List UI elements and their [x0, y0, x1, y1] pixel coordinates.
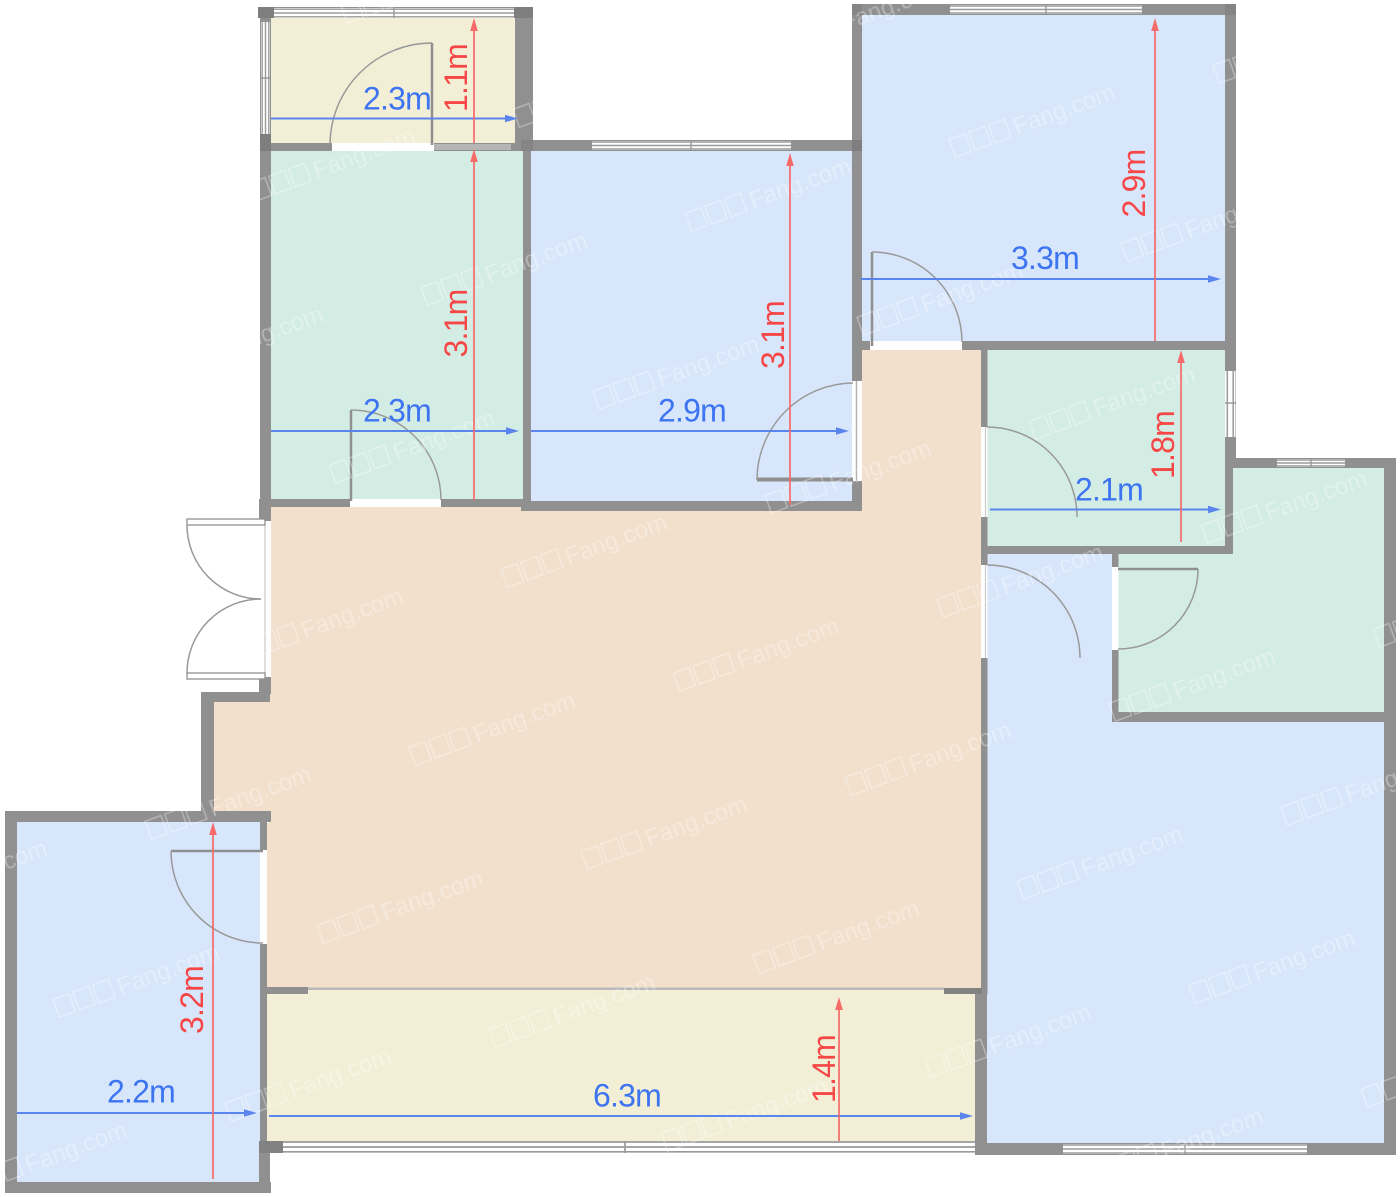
svg-text:3.2m: 3.2m [174, 966, 210, 1034]
svg-text:1.1m: 1.1m [438, 44, 474, 112]
svg-text:2.1m: 2.1m [1075, 471, 1143, 507]
svg-text:3.1m: 3.1m [438, 290, 474, 358]
svg-text:1.4m: 1.4m [806, 1035, 842, 1103]
svg-text:6.3m: 6.3m [593, 1077, 661, 1113]
svg-text:3.3m: 3.3m [1011, 240, 1079, 276]
svg-text:1.8m: 1.8m [1145, 411, 1181, 479]
svg-text:2.3m: 2.3m [363, 393, 431, 429]
svg-text:3.1m: 3.1m [755, 301, 791, 369]
svg-text:2.3m: 2.3m [363, 81, 431, 117]
svg-text:2.2m: 2.2m [107, 1073, 175, 1109]
svg-text:2.9m: 2.9m [1116, 150, 1152, 218]
svg-text:2.9m: 2.9m [658, 393, 726, 429]
